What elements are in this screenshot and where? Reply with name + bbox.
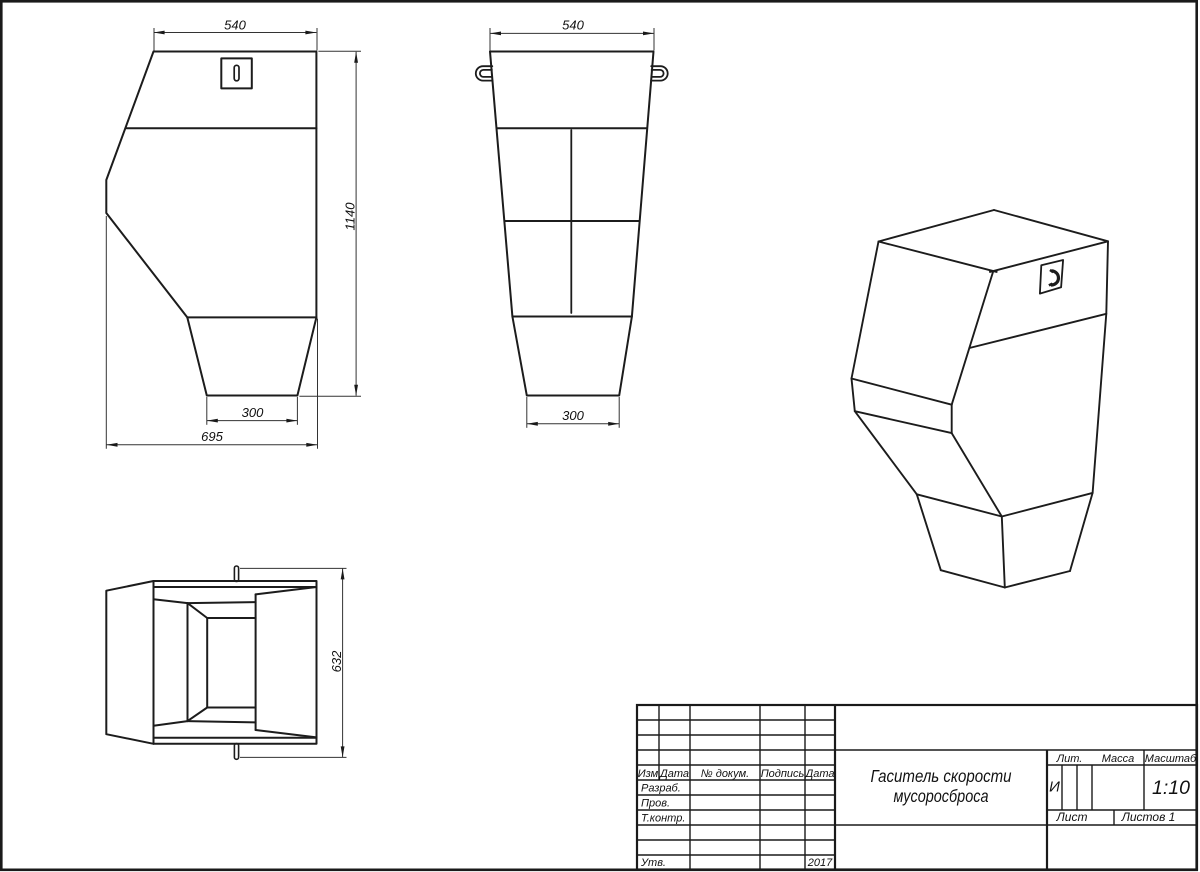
svg-text:632: 632: [329, 650, 344, 672]
svg-text:№ докум.: № докум.: [701, 768, 749, 780]
svg-text:1:10: 1:10: [1152, 777, 1190, 799]
svg-text:540: 540: [562, 18, 584, 33]
svg-text:1140: 1140: [343, 202, 358, 231]
svg-text:Т.контр.: Т.контр.: [641, 813, 685, 825]
svg-text:Масштаб: Масштаб: [1145, 753, 1197, 765]
svg-text:Масса: Масса: [1102, 753, 1135, 765]
svg-text:695: 695: [201, 429, 223, 444]
svg-text:300: 300: [242, 405, 264, 420]
svg-text:Лист: Лист: [1056, 810, 1088, 824]
svg-text:И: И: [1049, 779, 1060, 796]
svg-text:Дата: Дата: [658, 768, 689, 780]
svg-text:Подпись: Подпись: [761, 768, 805, 780]
svg-text:мусоросброса: мусоросброса: [894, 786, 989, 806]
svg-text:Листов 1: Листов 1: [1121, 810, 1176, 824]
svg-text:Дата: Дата: [803, 768, 834, 780]
svg-text:Пров.: Пров.: [641, 798, 670, 810]
svg-text:Лит.: Лит.: [1056, 753, 1083, 765]
svg-text:2017: 2017: [807, 857, 833, 869]
svg-text:Гаситель скорости: Гаситель скорости: [871, 766, 1012, 786]
svg-text:300: 300: [562, 408, 584, 423]
svg-text:540: 540: [224, 18, 246, 33]
svg-text:Разраб.: Разраб.: [641, 783, 681, 795]
svg-text:Изм: Изм: [638, 768, 659, 780]
svg-text:Утв.: Утв.: [640, 857, 666, 869]
